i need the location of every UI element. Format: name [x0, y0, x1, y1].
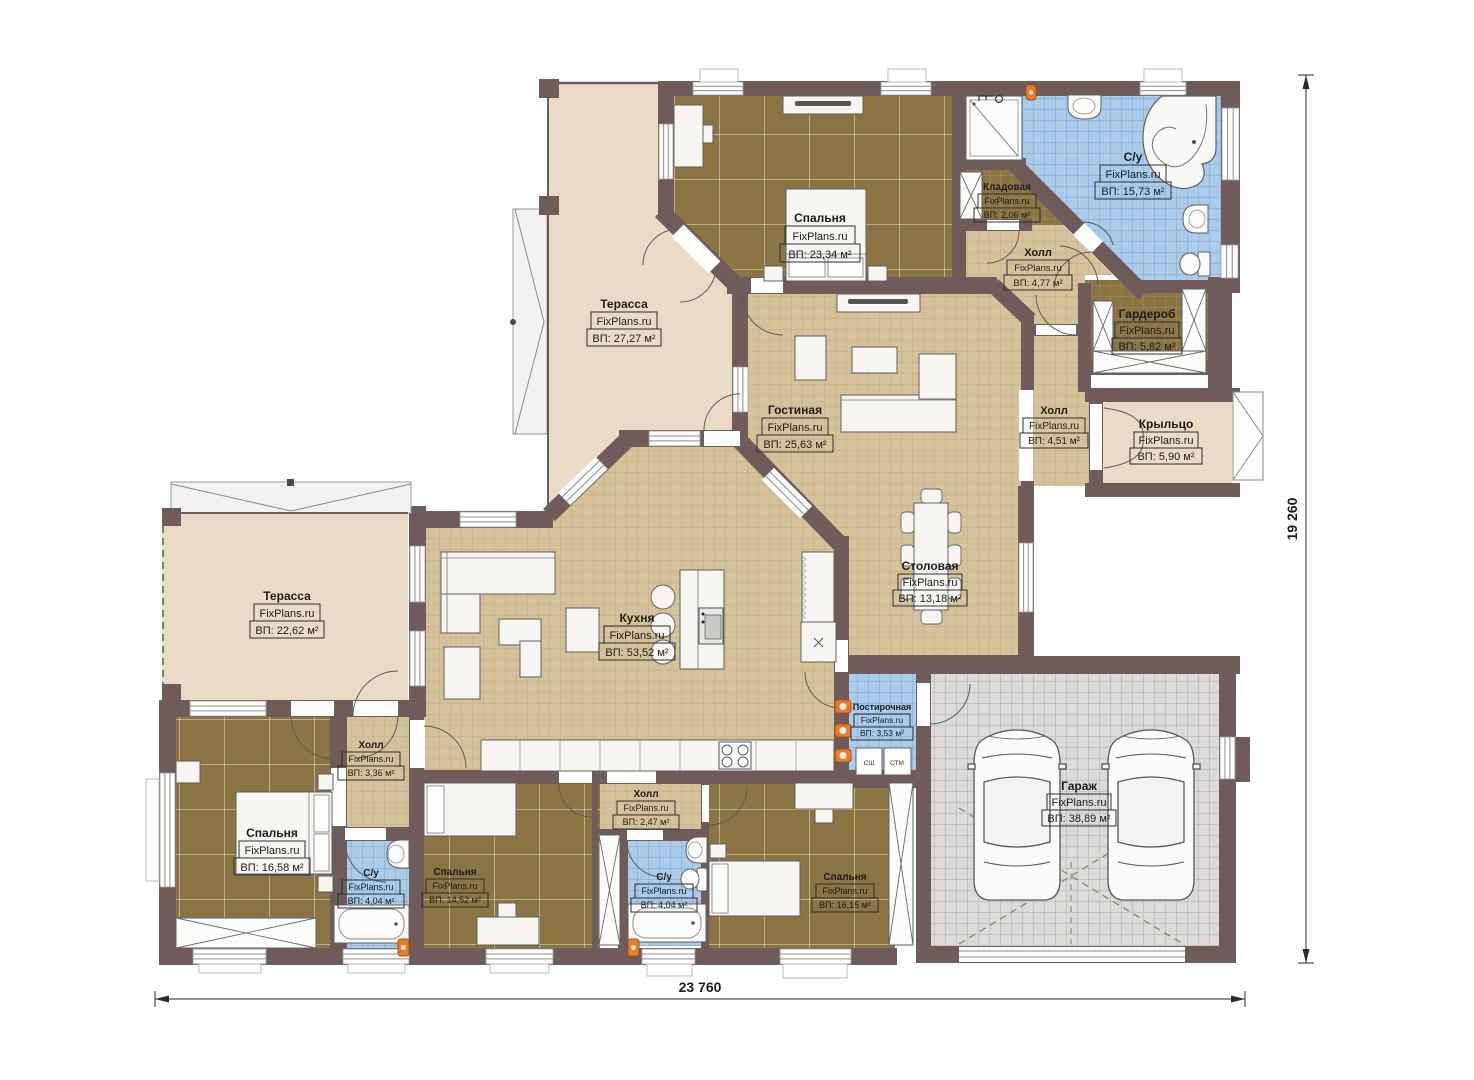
svg-text:23 760: 23 760	[679, 979, 722, 995]
svg-text:Спальня: Спальня	[246, 826, 298, 840]
svg-text:FixPlans.ru: FixPlans.ru	[1051, 797, 1106, 809]
svg-text:СТМ: СТМ	[890, 760, 904, 767]
svg-text:ВП: 4,04 м²: ВП: 4,04 м²	[348, 896, 395, 906]
svg-text:ВП: 16,58 м²: ВП: 16,58 м²	[240, 862, 304, 874]
svg-text:Гостиная: Гостиная	[768, 403, 822, 417]
svg-text:FixPlans.ru: FixPlans.ru	[1105, 169, 1160, 181]
svg-text:FixPlans.ru: FixPlans.ru	[1119, 325, 1174, 337]
svg-text:FixPlans.ru: FixPlans.ru	[348, 882, 393, 892]
svg-text:ВП: 13,18 м²: ВП: 13,18 м²	[898, 593, 962, 605]
svg-text:ВП: 4,77 м²: ВП: 4,77 м²	[1013, 278, 1062, 289]
svg-text:СШ: СШ	[864, 760, 875, 767]
svg-text:Столовая: Столовая	[901, 559, 958, 573]
svg-text:FixPlans.ru: FixPlans.ru	[348, 754, 393, 764]
svg-text:ВП: 3,36 м²: ВП: 3,36 м²	[348, 768, 395, 778]
svg-text:ВП: 23,34 м²: ВП: 23,34 м²	[788, 249, 852, 261]
svg-text:Холл: Холл	[1024, 247, 1052, 259]
svg-text:Гардероб: Гардероб	[1119, 307, 1176, 321]
svg-text:FixPlans.ru: FixPlans.ru	[1138, 435, 1193, 447]
svg-text:ВП: 2,06 м²: ВП: 2,06 м²	[984, 210, 1031, 220]
svg-text:FixPlans.ru: FixPlans.ru	[1014, 263, 1062, 274]
svg-text:ВП: 5,82 м²: ВП: 5,82 м²	[1118, 341, 1175, 353]
svg-text:FixPlans.ru: FixPlans.ru	[1029, 421, 1079, 432]
svg-text:Кухня: Кухня	[619, 611, 654, 625]
svg-text:ВП: 2,47 м²: ВП: 2,47 м²	[623, 817, 670, 827]
svg-text:Терасса: Терасса	[263, 589, 311, 603]
svg-text:FixPlans.ru: FixPlans.ru	[609, 630, 664, 642]
svg-text:Спальня: Спальня	[794, 211, 846, 225]
svg-text:ВП: 22,62 м²: ВП: 22,62 м²	[255, 625, 319, 637]
svg-text:FixPlans.ru: FixPlans.ru	[432, 881, 477, 891]
svg-text:FixPlans.ru: FixPlans.ru	[259, 608, 314, 620]
svg-text:ВП: 4,04 м²: ВП: 4,04 м²	[641, 900, 688, 910]
svg-text:FixPlans.ru: FixPlans.ru	[861, 715, 904, 725]
svg-text:FixPlans.ru: FixPlans.ru	[822, 886, 867, 896]
svg-text:Холл: Холл	[1040, 405, 1068, 417]
svg-text:ВП: 15,73 м²: ВП: 15,73 м²	[1101, 186, 1165, 198]
svg-text:FixPlans.ru: FixPlans.ru	[792, 231, 847, 243]
svg-text:FixPlans.ru: FixPlans.ru	[244, 845, 299, 857]
svg-text:Постирочная: Постирочная	[853, 702, 911, 712]
svg-text:ВП: 25,63 м²: ВП: 25,63 м²	[763, 439, 827, 451]
svg-text:С/у: С/у	[363, 868, 379, 879]
svg-text:Крыльцо: Крыльцо	[1139, 417, 1194, 431]
svg-text:FixPlans.ru: FixPlans.ru	[623, 803, 668, 813]
svg-text:19 260: 19 260	[1284, 497, 1300, 540]
svg-text:FixPlans.ru: FixPlans.ru	[984, 196, 1029, 206]
svg-text:Терасса: Терасса	[600, 297, 648, 311]
svg-text:С/у: С/у	[656, 872, 672, 883]
svg-text:ВП: 38,89 м²: ВП: 38,89 м²	[1047, 813, 1111, 825]
svg-text:Спальня: Спальня	[433, 867, 476, 878]
svg-text:ВП: 5,90 м²: ВП: 5,90 м²	[1137, 451, 1194, 463]
svg-text:ВП: 53,52 м²: ВП: 53,52 м²	[605, 647, 669, 659]
svg-text:ВП: 4,51 м²: ВП: 4,51 м²	[1028, 436, 1081, 447]
svg-text:ВП: 27,27 м²: ВП: 27,27 м²	[592, 333, 656, 345]
svg-text:Гараж: Гараж	[1061, 779, 1097, 793]
svg-text:Кладовая: Кладовая	[983, 182, 1031, 193]
svg-text:FixPlans.ru: FixPlans.ru	[767, 422, 822, 434]
svg-text:С/у: С/у	[1124, 150, 1143, 164]
svg-text:ВП: 16,15 м²: ВП: 16,15 м²	[819, 900, 871, 910]
svg-text:Спальня: Спальня	[823, 872, 866, 883]
svg-text:FixPlans.ru: FixPlans.ru	[902, 577, 957, 589]
svg-text:Холл: Холл	[358, 740, 383, 751]
svg-text:ВП: 14,52 м²: ВП: 14,52 м²	[429, 895, 481, 905]
svg-text:Холл: Холл	[633, 789, 658, 800]
svg-text:FixPlans.ru: FixPlans.ru	[641, 886, 686, 896]
svg-text:FixPlans.ru: FixPlans.ru	[596, 316, 651, 328]
svg-text:ВП: 3,53 м²: ВП: 3,53 м²	[860, 728, 904, 738]
